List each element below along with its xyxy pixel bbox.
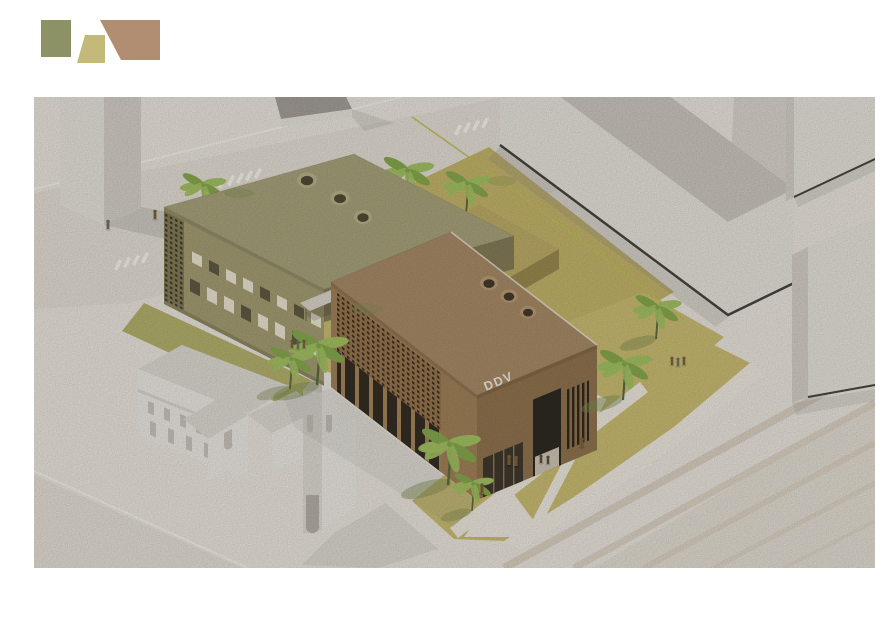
logo-olive-square-icon [41,20,71,57]
logo-khaki-trapezoid-icon [77,35,105,63]
logo-brown-parallelogram-icon [100,20,160,60]
architectural-rendering: DDV [34,97,875,568]
page: DDV [0,0,890,629]
render-grain [34,97,875,568]
studio-logo [35,18,165,66]
